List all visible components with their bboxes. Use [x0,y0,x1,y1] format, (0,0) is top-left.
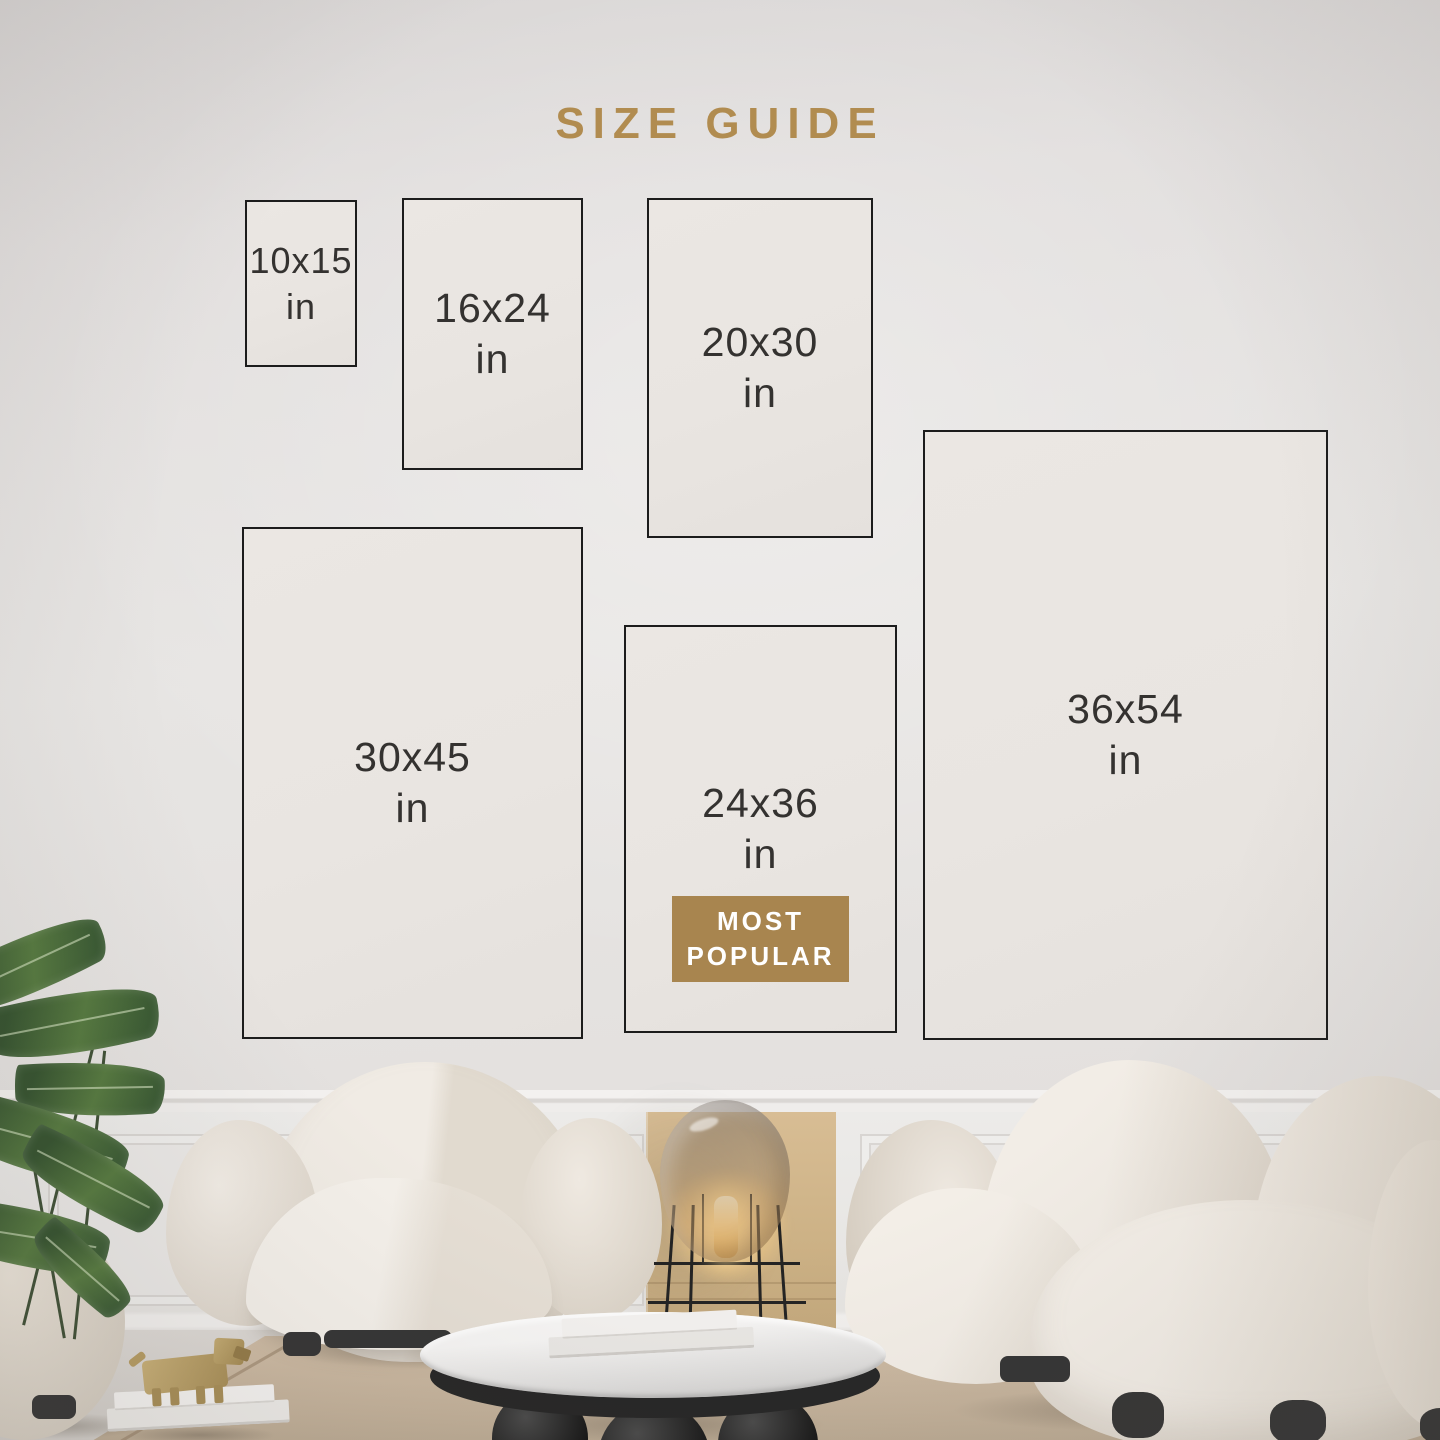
dog-figurine-leg [152,1388,162,1406]
size-box-16x24: 16x24in [402,198,583,470]
dog-figurine-leg [214,1385,224,1403]
size-guide-mockup: SIZE GUIDE 10x15in16x24in20x30in30x45in2… [0,0,1440,1440]
size-box-24x36: 24x36inMOSTPOPULAR [624,625,897,1033]
size-box-36x54: 36x54in [923,430,1328,1040]
lamp-crossbar [654,1262,800,1265]
size-unit: in [286,286,316,327]
size-box-10x15: 10x15in [245,200,357,367]
size-label: 30x45 [354,734,471,781]
size-unit: in [743,370,777,417]
ottoman-foot [32,1395,76,1419]
size-label: 24x36 [702,780,819,827]
size-label: 36x54 [1067,686,1184,733]
size-unit: in [396,785,430,832]
size-label: 10x15 [249,240,352,281]
size-label: 20x30 [702,319,819,366]
sofa-foot [1270,1400,1326,1440]
lamp-glass-globe [660,1100,790,1262]
sofa-foot [1000,1356,1070,1382]
books-on-table [547,1292,762,1361]
dog-figurine-leg [170,1387,180,1405]
floor-books-group [98,1337,303,1440]
size-box-30x45: 30x45in [242,527,583,1039]
size-unit: in [744,831,778,878]
dog-figurine-leg [196,1386,206,1404]
size-unit: in [1109,737,1143,784]
size-label: 16x24 [434,285,551,332]
sofa-foot [1112,1392,1164,1438]
page-title: SIZE GUIDE [0,99,1440,149]
size-unit: in [476,336,510,383]
size-box-20x30: 20x30in [647,198,873,538]
sofa-foot [1420,1408,1440,1440]
most-popular-badge: MOSTPOPULAR [672,896,848,982]
